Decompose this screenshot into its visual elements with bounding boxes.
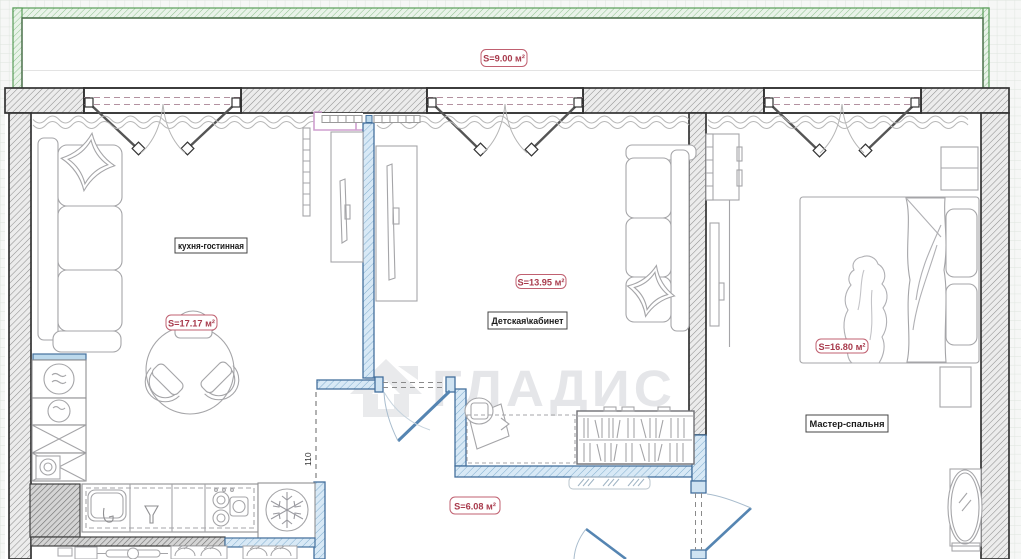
svg-text:S=17.17 м²: S=17.17 м² (168, 319, 215, 329)
svg-text:S=16.80 м²: S=16.80 м² (819, 342, 866, 352)
svg-text:S=9.00 м²: S=9.00 м² (483, 54, 525, 64)
svg-text:Детская\кабинет: Детская\кабинет (492, 316, 565, 326)
svg-text:S=6.08 м²: S=6.08 м² (454, 502, 496, 512)
svg-text:S=13.95 м²: S=13.95 м² (518, 278, 565, 288)
svg-text:кухня-гостинная: кухня-гостинная (178, 241, 244, 251)
svg-text:110: 110 (303, 452, 313, 466)
svg-text:Мастер-спальня: Мастер-спальня (810, 419, 885, 429)
